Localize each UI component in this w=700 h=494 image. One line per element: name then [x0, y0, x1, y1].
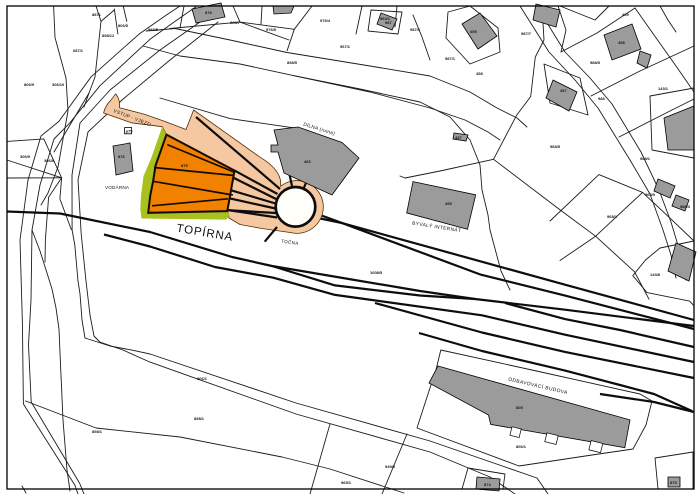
svg-text:806/1: 806/1 [516, 444, 527, 449]
svg-text:306/8: 306/8 [44, 158, 55, 163]
svg-text:495: 495 [445, 201, 452, 206]
svg-text:805: 805 [516, 405, 523, 410]
svg-text:949/5: 949/5 [385, 464, 396, 469]
svg-text:875: 875 [181, 163, 188, 168]
svg-text:987/1: 987/1 [445, 56, 456, 61]
svg-text:898/1: 898/1 [194, 416, 205, 421]
svg-text:p75: p75 [126, 128, 134, 133]
svg-text:VODÁRNA: VODÁRNA [105, 184, 130, 190]
svg-text:976/4: 976/4 [320, 18, 331, 23]
svg-text:983/5: 983/5 [148, 27, 159, 32]
svg-text:8871: 8871 [92, 12, 102, 17]
svg-text:988/5: 988/5 [590, 60, 601, 65]
svg-text:968/1: 968/1 [607, 214, 618, 219]
svg-text:987/7: 987/7 [521, 31, 532, 36]
svg-text:806/5: 806/5 [118, 23, 129, 28]
svg-text:458: 458 [618, 40, 625, 45]
svg-text:1008/5: 1008/5 [370, 270, 383, 275]
svg-text:968/9: 968/9 [645, 192, 656, 197]
svg-text:469: 469 [622, 12, 629, 17]
svg-text:987: 987 [385, 20, 392, 25]
svg-text:898/12: 898/12 [102, 33, 115, 38]
svg-text:463: 463 [304, 159, 311, 164]
svg-text:963/7: 963/7 [230, 20, 241, 25]
svg-text:874: 874 [484, 482, 491, 487]
svg-text:967/1: 967/1 [340, 44, 351, 49]
svg-text:306/9: 306/9 [20, 154, 31, 159]
svg-text:878: 878 [205, 10, 212, 15]
svg-text:458: 458 [476, 71, 483, 76]
svg-text:987/3: 987/3 [410, 27, 421, 32]
svg-text:806/1: 806/1 [197, 376, 208, 381]
svg-text:457: 457 [560, 88, 567, 93]
svg-text:965/1: 965/1 [341, 480, 352, 485]
svg-text:497: 497 [455, 135, 462, 140]
svg-text:875: 875 [670, 480, 677, 485]
svg-text:976/5: 976/5 [266, 27, 277, 32]
svg-text:988/1: 988/1 [640, 156, 651, 161]
svg-text:988/3: 988/3 [680, 204, 691, 209]
svg-text:306/10: 306/10 [52, 82, 65, 87]
svg-text:968/5: 968/5 [550, 144, 561, 149]
svg-text:143/1: 143/1 [658, 86, 669, 91]
svg-text:988: 988 [598, 96, 605, 101]
svg-text:143/8: 143/8 [650, 272, 661, 277]
svg-text:687/1: 687/1 [73, 48, 84, 53]
svg-text:806/9: 806/9 [24, 82, 35, 87]
svg-text:898/1: 898/1 [92, 429, 103, 434]
svg-text:876: 876 [118, 154, 125, 159]
svg-text:459: 459 [470, 29, 477, 34]
svg-text:898/5: 898/5 [287, 60, 298, 65]
